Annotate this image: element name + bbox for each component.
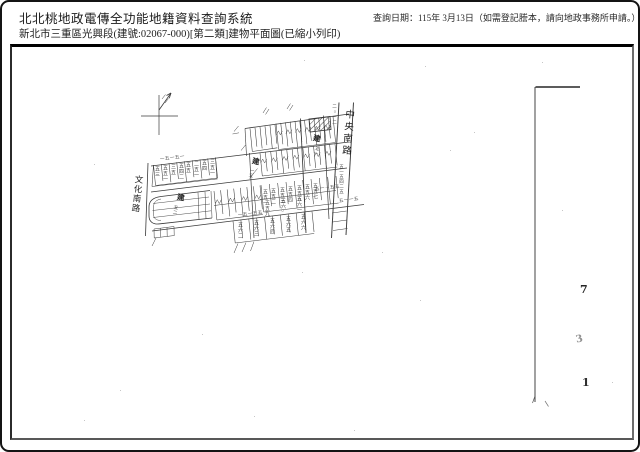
lot-number-label: 二五一 xyxy=(193,161,198,178)
building-mark: 建 xyxy=(312,134,321,143)
lot-number-label: 五六五 xyxy=(285,216,290,233)
building-mark: 建 xyxy=(176,193,185,202)
building-mark: 建 xyxy=(251,157,260,166)
lane-number-label: 二○一二 xyxy=(332,104,337,125)
lot-number-label: 三五 xyxy=(170,164,175,175)
lot-number-label: 五六一 xyxy=(296,196,301,213)
lot-number-label: 五六三 xyxy=(253,220,258,237)
lot-number-label: 五四 xyxy=(201,160,206,171)
lot-number-label: 五三 xyxy=(154,166,159,177)
lot-number-label: 五五六 xyxy=(304,184,309,201)
north-arrow xyxy=(141,93,178,135)
lot-number-label: 五六○ xyxy=(280,198,285,215)
lot-number-label: 一五 xyxy=(248,168,254,179)
lot-number-label: 五五 xyxy=(185,162,190,173)
floor-plan-drawing xyxy=(2,2,640,452)
lot-number-label: 五六四 xyxy=(269,218,274,235)
lot-number-label: 五五九 xyxy=(264,200,269,217)
lot-number-label: 五六二 xyxy=(237,222,242,239)
lot-number-label: 三五一 xyxy=(209,159,214,176)
lot-number-label: 五四二 xyxy=(178,163,183,180)
lot-number-label: 五五二 xyxy=(270,188,275,205)
margin-numeral: 1 xyxy=(582,377,590,388)
roadside-lot-numbers: 五一五四二五 xyxy=(339,164,344,194)
margin-numeral: 7 xyxy=(580,284,588,295)
lot-number-label: 五五四 xyxy=(287,186,292,203)
lot-number-label: 五六六 xyxy=(300,214,305,231)
margin-rule-line xyxy=(533,87,581,407)
scanned-query-result-page: 北北桃地政電傳全功能地籍資料查詢系統 新北市三重區光興段(建號:02067-00… xyxy=(0,0,640,452)
building-floor-plan: 文化南路 中央南路 二○一二 五一五四二五 建 建 建 五三 五五一 三五 五四… xyxy=(2,2,640,452)
lot-number-label: 五五一 xyxy=(162,165,167,182)
lot-number-label: 五二 xyxy=(172,205,178,216)
